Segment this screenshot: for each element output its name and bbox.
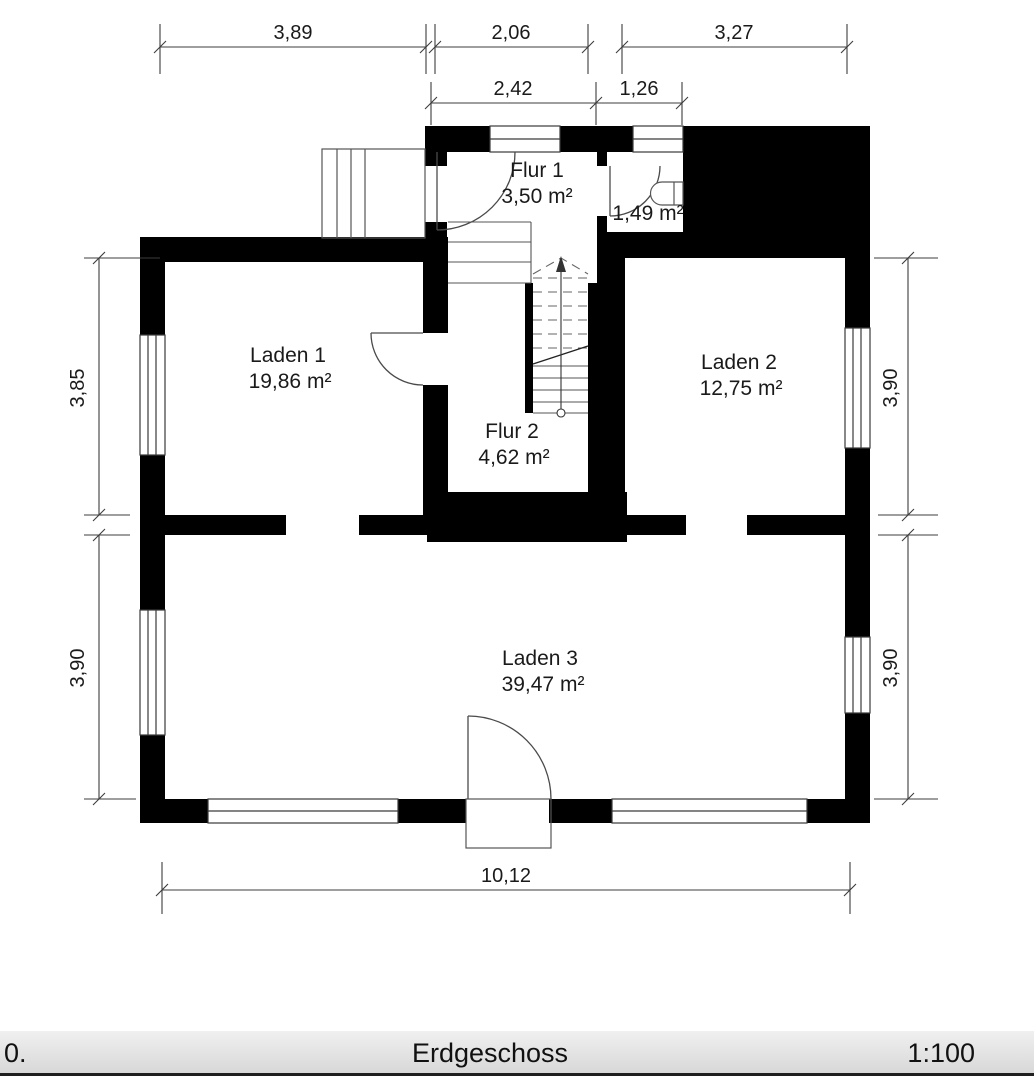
dim-left-390 bbox=[84, 529, 136, 805]
wall-laden1-top bbox=[140, 237, 448, 262]
laden3-entry-door-icon bbox=[468, 716, 551, 799]
laden1-door-icon bbox=[371, 333, 423, 385]
laden2-name: Laden 2 bbox=[701, 351, 777, 374]
wall-top-seg1 bbox=[425, 126, 490, 152]
wall-entrance-jamb-top bbox=[425, 152, 447, 166]
walls bbox=[140, 126, 870, 823]
wc-area: 1,49 m² bbox=[612, 202, 683, 225]
wall-middle-seg2 bbox=[359, 515, 427, 535]
dim-label-327: 3,27 bbox=[715, 22, 754, 44]
dim-label-390-right-top: 3,90 bbox=[880, 369, 902, 408]
staircase bbox=[448, 222, 588, 417]
floor-plan-drawing: Flur 1 3,50 m² 1,49 m² Laden 1 19,86 m² … bbox=[0, 0, 1034, 1031]
opening-window-left-1 bbox=[140, 335, 165, 455]
wall-stair-right bbox=[588, 283, 625, 492]
dim-label-389: 3,89 bbox=[274, 22, 313, 44]
dim-label-1012: 10,12 bbox=[481, 865, 531, 887]
wall-stair-left bbox=[525, 283, 533, 413]
flur2-area: 4,62 m² bbox=[478, 446, 549, 469]
laden2-area: 12,75 m² bbox=[700, 377, 783, 400]
scale-label: 1:100 bbox=[907, 1038, 975, 1069]
dim-label-390-right-bottom: 3,90 bbox=[880, 649, 902, 688]
page-label: 0. bbox=[4, 1038, 27, 1069]
floor-title: Erdgeschoss bbox=[412, 1038, 568, 1069]
dim-label-242: 2,42 bbox=[494, 78, 533, 100]
exterior-steps bbox=[322, 149, 425, 238]
flur1-name: Flur 1 bbox=[510, 159, 564, 182]
stair-walk-line bbox=[557, 262, 565, 417]
wall-wc-bottom bbox=[597, 232, 683, 258]
opening-entrance-door bbox=[425, 166, 447, 222]
wall-flur2-block bbox=[427, 492, 627, 542]
wall-top-seg2 bbox=[560, 126, 633, 152]
flur2-name: Flur 2 bbox=[485, 420, 539, 443]
opening-bottom-door bbox=[466, 799, 549, 823]
dim-label-385: 3,85 bbox=[67, 369, 89, 408]
laden3-area: 39,47 m² bbox=[502, 673, 585, 696]
laden1-area: 19,86 m² bbox=[249, 370, 332, 393]
wall-wc-jamb-bottom bbox=[597, 216, 607, 232]
wall-laden1-flur2 bbox=[423, 262, 448, 515]
wall-middle-seg3 bbox=[627, 515, 686, 535]
laden3-name: Laden 3 bbox=[502, 647, 578, 670]
dim-label-390-left: 3,90 bbox=[67, 649, 89, 688]
wall-middle-seg4 bbox=[747, 515, 849, 535]
opening-window-left-2 bbox=[140, 610, 165, 735]
opening-laden1-door bbox=[423, 333, 448, 385]
stair-upper-steps bbox=[448, 222, 531, 283]
wall-wc-jamb-top bbox=[597, 152, 607, 166]
title-bar: 0. Erdgeschoss 1:100 bbox=[0, 1031, 1034, 1076]
laden1-name: Laden 1 bbox=[250, 344, 326, 367]
dim-label-206: 2,06 bbox=[492, 22, 531, 44]
flur1-area: 3,50 m² bbox=[501, 185, 572, 208]
wall-flur1-laden2 bbox=[597, 258, 625, 283]
floor-plan-sheet: Flur 1 3,50 m² 1,49 m² Laden 1 19,86 m² … bbox=[0, 0, 1034, 1080]
dim-label-126: 1,26 bbox=[620, 78, 659, 100]
stair-direction-arrow bbox=[556, 256, 566, 272]
opening-window-right-1 bbox=[845, 328, 870, 448]
wall-middle-seg1 bbox=[164, 515, 286, 535]
wall-mass-top-right bbox=[683, 126, 870, 258]
opening-window-right-2 bbox=[845, 637, 870, 713]
